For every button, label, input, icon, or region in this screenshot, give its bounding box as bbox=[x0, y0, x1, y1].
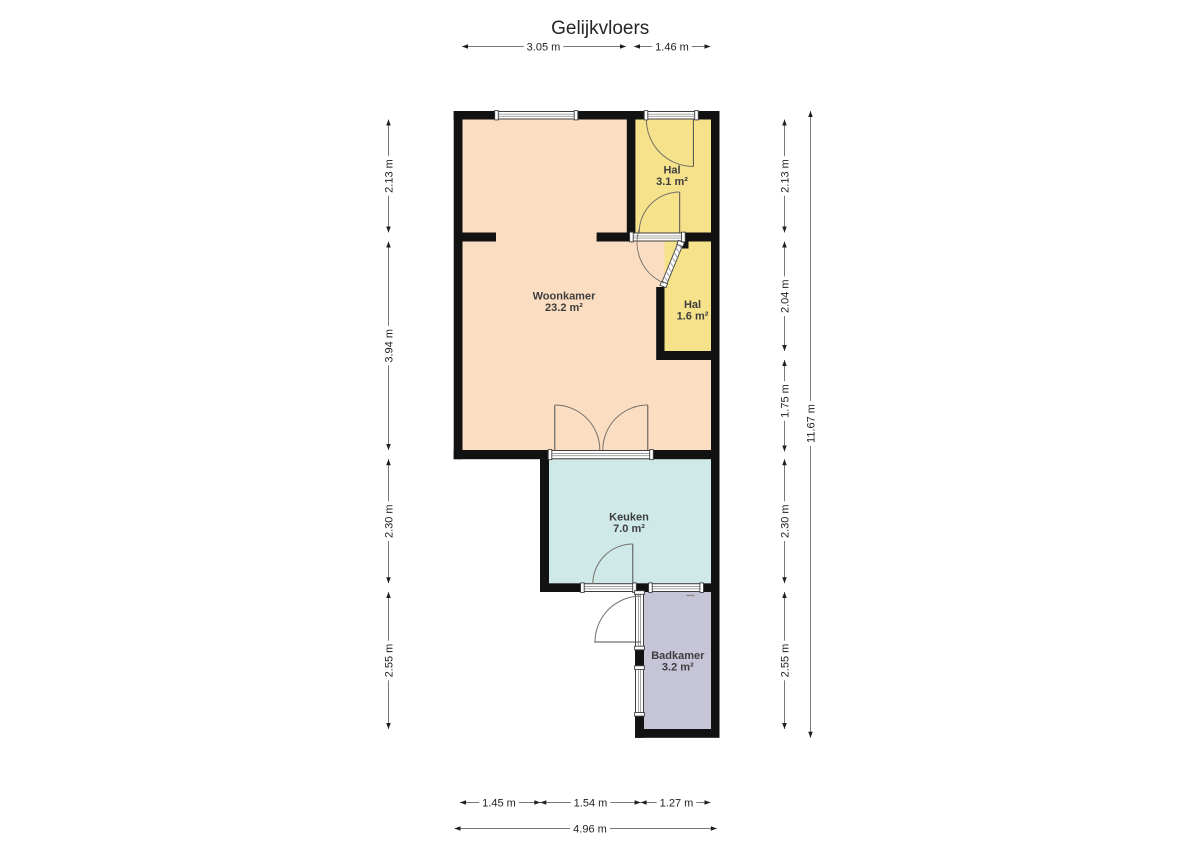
svg-text:2.55 m: 2.55 m bbox=[780, 644, 792, 678]
svg-text:3.94 m: 3.94 m bbox=[384, 329, 396, 363]
svg-text:11.67 m: 11.67 m bbox=[806, 404, 818, 443]
svg-text:Gelijkvloers: Gelijkvloers bbox=[551, 18, 649, 39]
svg-text:2.30 m: 2.30 m bbox=[780, 504, 792, 538]
svg-text:2.55 m: 2.55 m bbox=[384, 644, 396, 678]
svg-text:1.46 m: 1.46 m bbox=[655, 42, 689, 54]
svg-text:1.75 m: 1.75 m bbox=[780, 384, 792, 418]
svg-text:7.0 m²: 7.0 m² bbox=[613, 523, 645, 535]
svg-text:23.2 m²: 23.2 m² bbox=[545, 302, 583, 314]
svg-text:3.05 m: 3.05 m bbox=[527, 42, 561, 54]
svg-text:Keuken: Keuken bbox=[609, 512, 649, 524]
svg-text:Badkamer: Badkamer bbox=[651, 650, 705, 662]
svg-text:4.96 m: 4.96 m bbox=[573, 824, 607, 836]
svg-text:3.2 m²: 3.2 m² bbox=[662, 662, 694, 674]
svg-text:2.13 m: 2.13 m bbox=[780, 159, 792, 193]
svg-text:Woonkamer: Woonkamer bbox=[533, 291, 596, 303]
svg-text:3.1 m²: 3.1 m² bbox=[656, 176, 688, 188]
svg-text:1.6 m²: 1.6 m² bbox=[677, 311, 709, 323]
svg-text:Hal: Hal bbox=[663, 165, 680, 177]
svg-text:2.30 m: 2.30 m bbox=[384, 504, 396, 538]
svg-text:2.04 m: 2.04 m bbox=[780, 279, 792, 313]
svg-text:Hal: Hal bbox=[684, 299, 701, 311]
svg-text:1.45 m: 1.45 m bbox=[482, 798, 516, 810]
svg-text:2.13 m: 2.13 m bbox=[384, 159, 396, 193]
svg-text:1.54 m: 1.54 m bbox=[574, 798, 608, 810]
svg-text:1.27 m: 1.27 m bbox=[660, 798, 694, 810]
